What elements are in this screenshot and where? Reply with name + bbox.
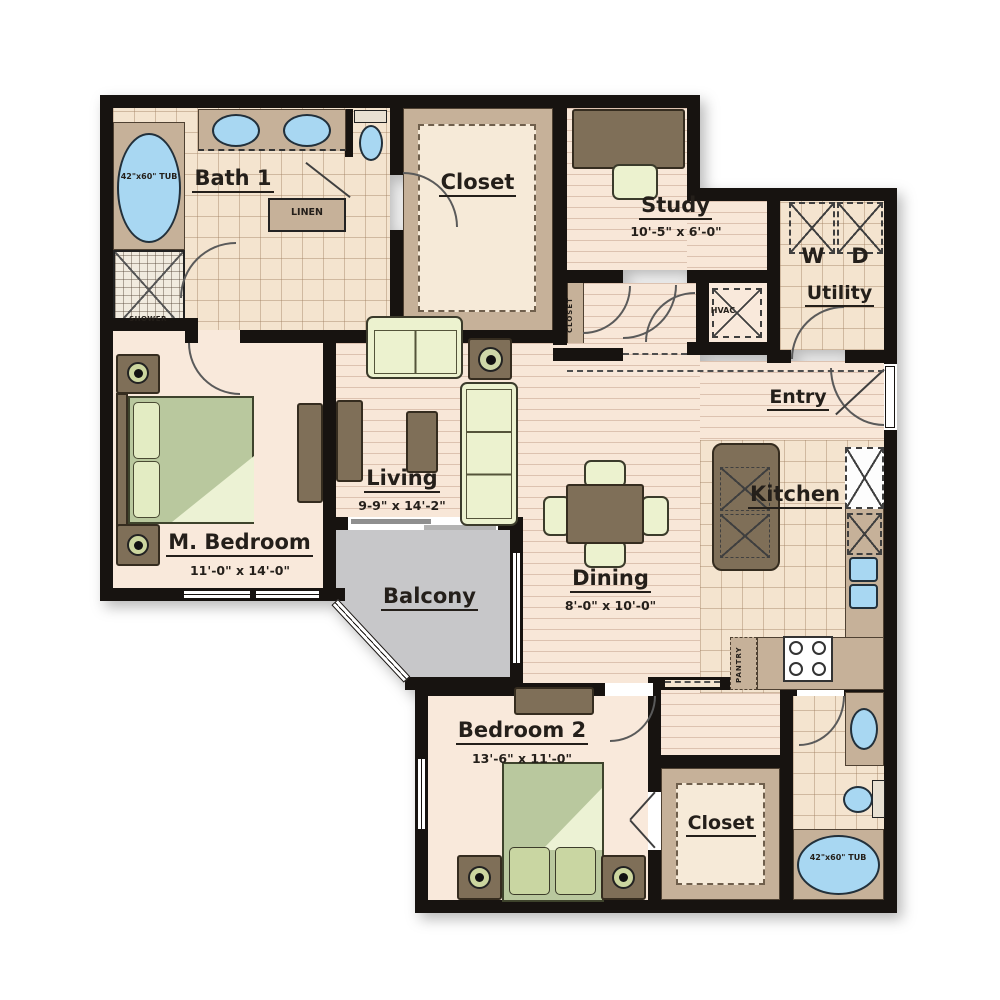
sink [283, 114, 331, 147]
wall [185, 318, 198, 343]
hall2-floor [661, 693, 780, 755]
loveseat-cushions [374, 330, 457, 374]
hvac-label: HVAC [700, 306, 746, 316]
bathtub2 [797, 835, 880, 895]
dryer-label: D [846, 244, 874, 268]
burner [812, 641, 826, 655]
wall [323, 330, 336, 601]
m-bedroom-label: M. Bedroom [157, 530, 322, 554]
dining-label: Dining [558, 566, 663, 590]
bath1-label: Bath 1 [163, 166, 303, 190]
wall [390, 95, 403, 175]
dresser [514, 687, 594, 715]
lamp-center [475, 873, 484, 882]
balcony-window [512, 552, 521, 664]
wall [553, 95, 567, 345]
lamp-center [134, 369, 143, 378]
bedroom2-dim: 13'-6" x 11'-0" [457, 751, 587, 766]
bed-headboard [116, 393, 128, 527]
ceiling-break-line [567, 370, 884, 372]
wall [553, 348, 623, 361]
wall [345, 109, 353, 157]
kitchen-label: Kitchen [740, 482, 850, 506]
pillow [555, 847, 596, 895]
toilet-tank [872, 780, 885, 818]
coffee-table [406, 411, 438, 473]
living-dim: 9-9" x 14'-2" [342, 498, 462, 513]
counter-corner [847, 513, 882, 555]
dresser [297, 403, 323, 503]
kitchen-sink [849, 584, 878, 609]
study-dim: 10'-5" x 6'-0" [612, 224, 740, 239]
window [417, 758, 426, 830]
dining-chair [584, 540, 626, 568]
dining-dim: 8'-0" x 10'-0" [548, 598, 673, 613]
bedroom2-label: Bedroom 2 [447, 718, 597, 742]
m-bedroom-dim: 11'-0" x 14'-0" [170, 563, 310, 578]
opening-header-line [623, 353, 687, 355]
window [255, 590, 320, 599]
toilet-tank [354, 110, 387, 123]
sink [212, 114, 260, 147]
toilet-bowl [843, 786, 873, 813]
closet-top-label: Closet [400, 170, 555, 194]
pantry-label: PANTRY [735, 642, 752, 688]
dining-chair [641, 496, 669, 536]
kitchen-sink [849, 557, 878, 582]
sliding-door-panel [351, 519, 431, 524]
wall [553, 270, 623, 283]
wall [767, 188, 780, 363]
refrigerator [845, 447, 884, 509]
entry-label: Entry [760, 386, 836, 408]
utility-label: Utility [792, 282, 887, 304]
wall [648, 755, 780, 768]
sink [850, 708, 878, 750]
window [183, 590, 251, 599]
washer-label: W [799, 244, 827, 268]
floor-plan: Bath 1 Closet Study 10'-5" x 6'-0" Utili… [0, 0, 1000, 1000]
entry-door-panel [885, 366, 895, 428]
desk [572, 109, 685, 169]
opening-header-line [665, 681, 720, 683]
pillow [133, 402, 160, 459]
toilet-bowl [359, 125, 383, 161]
linen-label: LINEN [271, 207, 343, 219]
pillow [509, 847, 550, 895]
living-label: Living [352, 466, 452, 490]
wall [240, 330, 336, 343]
wall [100, 95, 113, 601]
plant-center [486, 355, 496, 365]
hall-closet-label: CLOSET [566, 286, 583, 344]
shower-label: SHOWER [114, 315, 182, 324]
study-label: Study [618, 193, 733, 217]
lamp-center [134, 541, 143, 550]
wall [780, 690, 793, 913]
bedroom2-door-opening [605, 683, 653, 696]
tub2-label: 42"x60" TUB [806, 853, 870, 863]
burner [789, 662, 803, 676]
wall [687, 95, 700, 201]
burner [812, 662, 826, 676]
closet-bottom-label: Closet [676, 812, 766, 834]
tub1-label: 42"x60" TUB [119, 172, 179, 182]
wall [767, 350, 791, 363]
dining-table [566, 484, 644, 544]
sofa-cushions [466, 389, 512, 519]
pillow [133, 461, 160, 518]
wall [845, 350, 884, 363]
lamp-center [619, 873, 628, 882]
burner [789, 641, 803, 655]
balcony-label: Balcony [372, 584, 487, 608]
island-cabinet [720, 514, 770, 558]
